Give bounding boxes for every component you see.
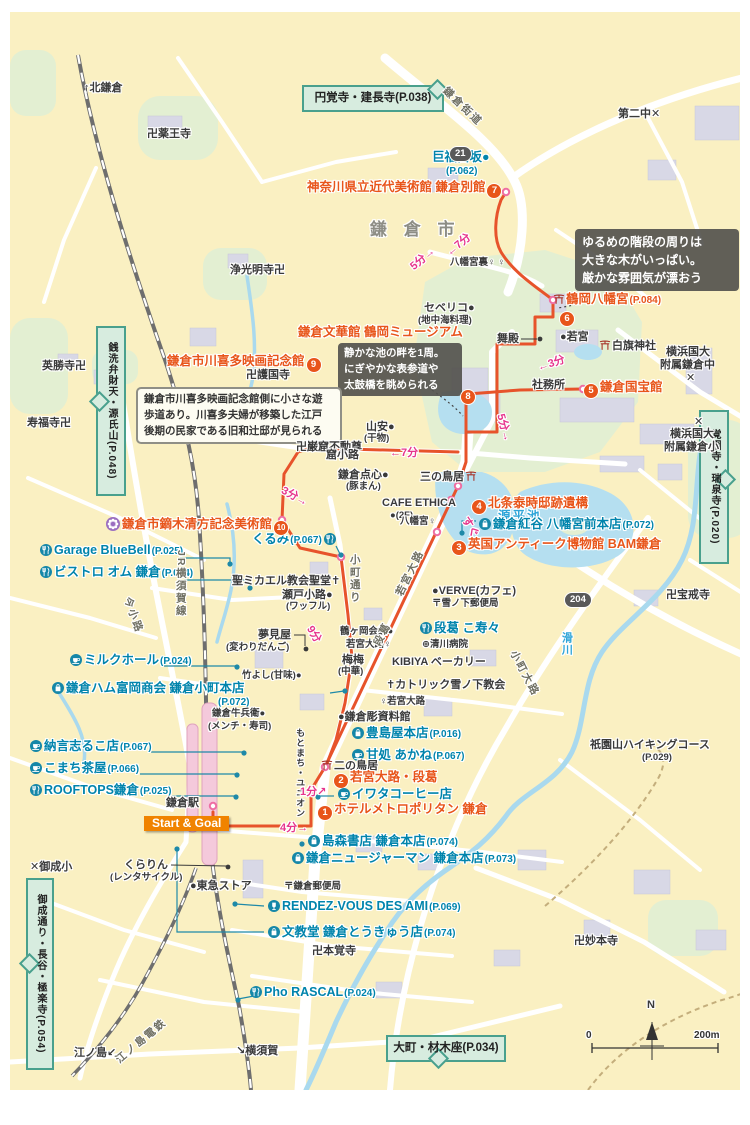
map-base xyxy=(0,0,750,1125)
kamakura-walking-map-page: ゆるめの階段の周りは大きな木がいっぱい。厳かな雰囲気が漂おう静かな池の畔を1周。… xyxy=(0,0,750,1125)
shrine-grounds xyxy=(414,250,642,472)
station-platform xyxy=(187,724,198,832)
station-platform xyxy=(202,703,217,865)
